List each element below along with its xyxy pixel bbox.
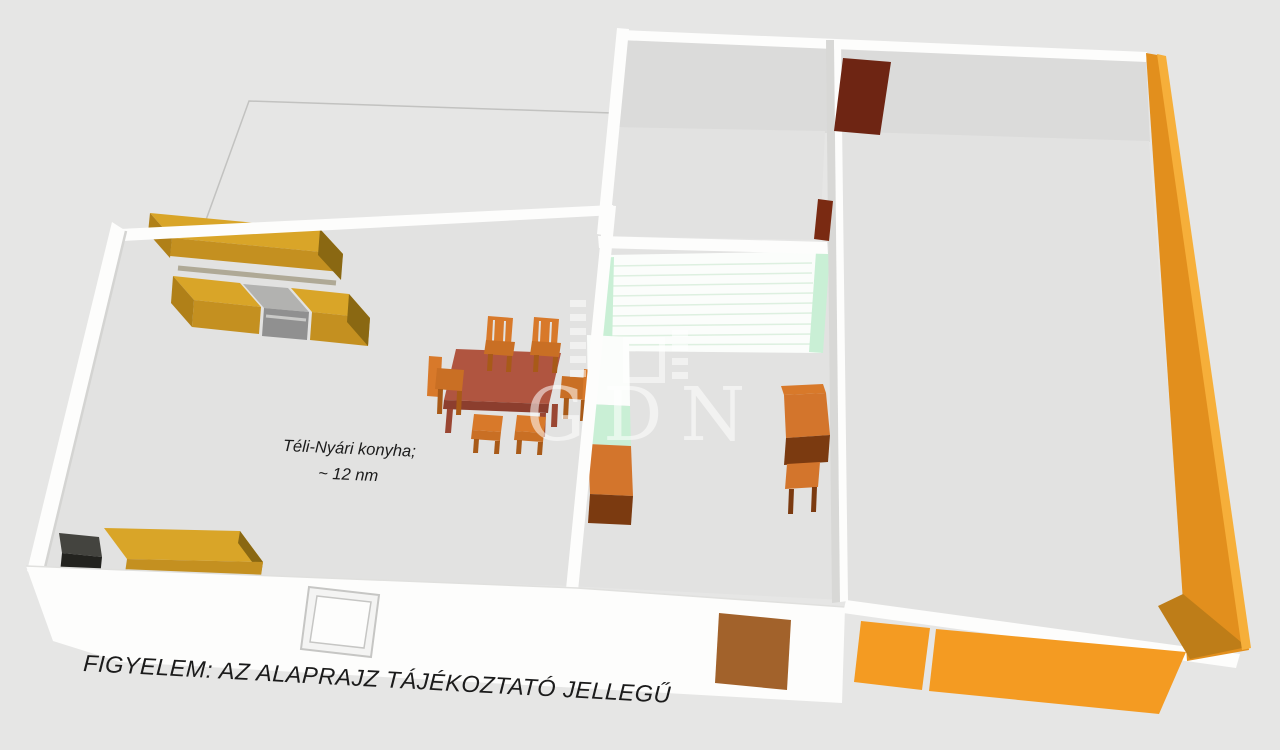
chair2-leg1: [533, 355, 539, 372]
room-label: Téli-Nyári konyha; ~ 12 nm: [260, 432, 438, 492]
right-dresser-body: [784, 393, 830, 438]
chair3-seat: [435, 368, 464, 391]
chair2-slat: [539, 321, 540, 342]
front-door-brown: [715, 613, 791, 690]
watermark-text: GDN: [526, 372, 763, 458]
right-stool-top: [785, 462, 820, 489]
chair2-slat2: [550, 322, 551, 343]
stool1-leg2: [494, 441, 500, 454]
right-stool-leg2: [811, 487, 817, 512]
chair1-slat2: [504, 321, 505, 342]
chair1-leg1: [487, 354, 493, 371]
chair1-seat: [484, 340, 515, 356]
window-frame-inner: [310, 596, 371, 648]
chair2-leg2: [552, 357, 558, 373]
chair2-seat: [530, 341, 561, 357]
stool1-leg1: [473, 439, 479, 453]
chair1-slat: [493, 320, 494, 341]
chair3-leg1: [437, 389, 443, 414]
chair1-leg2: [506, 356, 512, 372]
chair1-backrest: [486, 316, 513, 344]
floorplan-image: GDN Téli-Nyári konyha; ~ 12 nm FIGYELEM:…: [0, 0, 1280, 750]
stool1-top: [472, 414, 503, 432]
left-dresser-front: [588, 494, 633, 525]
chair2-backrest: [532, 317, 559, 345]
right-dresser-front: [784, 435, 830, 465]
front-counter-top: [104, 528, 263, 562]
stove-front: [262, 308, 309, 340]
front-strip-a: [854, 621, 930, 690]
stool2-leg1: [516, 440, 522, 454]
floorplan-canvas: GDN: [0, 0, 1280, 750]
right-room-floor: [828, 131, 1188, 650]
hall-floor: [602, 127, 825, 240]
chair3-leg2: [456, 391, 462, 415]
right-stool-leg1: [788, 489, 794, 514]
